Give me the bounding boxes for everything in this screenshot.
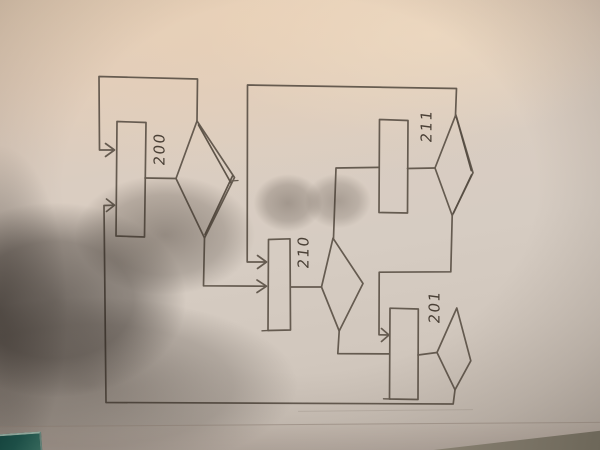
flowchart-drawing: [0, 0, 600, 450]
edge-box211-diamond211: [408, 168, 436, 169]
label-200: 200: [138, 127, 182, 171]
label-200-text: 200: [151, 131, 169, 166]
edge-diamond210-box211: [334, 167, 380, 238]
label-201: 201: [413, 285, 457, 329]
label-201-text: 201: [426, 289, 444, 324]
label-211-text: 211: [418, 108, 436, 143]
edge-diamond210-box201: [338, 331, 390, 354]
diamond-210: [322, 238, 364, 331]
label-211: 211: [405, 104, 449, 148]
label-210: 210: [282, 230, 326, 274]
diamond-200: [176, 121, 238, 238]
edge-diamond200-box210: [204, 238, 267, 293]
hand-shadow: [0, 0, 600, 450]
label-210-text: 210: [295, 234, 313, 269]
paper-crease: [298, 409, 473, 412]
edge-diamond201-box200-loop: [104, 199, 455, 404]
arrowhead: [382, 329, 390, 342]
teal-object-corner: [0, 431, 43, 450]
arrowhead: [258, 256, 267, 269]
box-211: [379, 120, 408, 214]
arrowhead: [107, 199, 115, 212]
photo-of-paper-flowchart: 200 210 211 201: [0, 0, 600, 450]
edge-box200-diamond200: [145, 178, 176, 179]
arrowhead: [106, 144, 115, 157]
arrowhead: [257, 280, 267, 293]
edge-box201-diamond201: [418, 353, 437, 356]
